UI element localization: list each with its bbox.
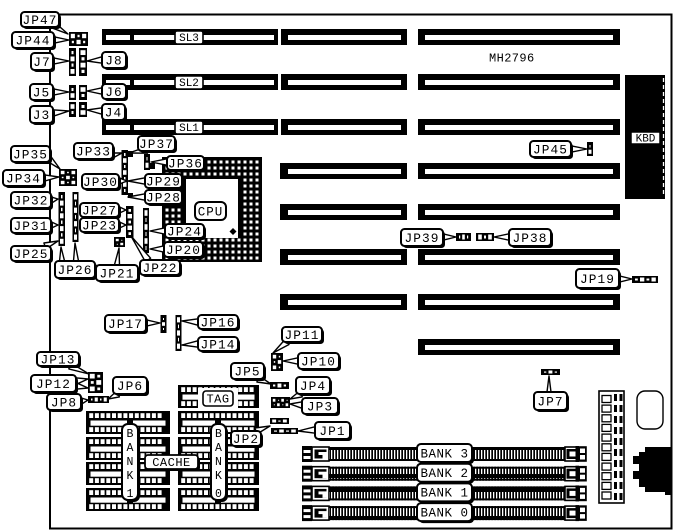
svg-text:JP2: JP2 (233, 432, 259, 447)
svg-text:N: N (127, 456, 134, 469)
svg-text:JP28: JP28 (146, 190, 181, 205)
svg-text:A: A (127, 442, 134, 455)
svg-text:K: K (215, 470, 222, 483)
svg-text:SL1: SL1 (179, 123, 199, 135)
svg-text:MH2796: MH2796 (489, 52, 535, 66)
svg-text:J6: J6 (105, 85, 123, 100)
svg-text:JP17: JP17 (108, 317, 143, 332)
svg-text:J4: J4 (105, 105, 123, 120)
svg-text:JP31: JP31 (13, 219, 48, 234)
svg-text:JP33: JP33 (76, 144, 111, 159)
svg-text:JP37: JP37 (139, 137, 174, 152)
svg-text:BANK 3: BANK 3 (420, 447, 468, 461)
svg-text:0: 0 (215, 488, 222, 501)
svg-text:BANK 0: BANK 0 (420, 506, 468, 520)
svg-text:B: B (215, 428, 222, 441)
svg-text:JP25: JP25 (13, 247, 48, 262)
svg-text:J8: J8 (105, 53, 123, 68)
svg-text:JP11: JP11 (284, 328, 319, 343)
svg-text:1: 1 (127, 488, 134, 501)
svg-text:JP8: JP8 (51, 395, 77, 410)
svg-text:JP39: JP39 (404, 231, 439, 246)
svg-text:SL3: SL3 (179, 33, 199, 45)
svg-text:JP19: JP19 (580, 272, 615, 287)
svg-text:A: A (215, 442, 222, 455)
svg-text:SL2: SL2 (179, 78, 199, 90)
svg-text:B: B (127, 428, 134, 441)
svg-text:JP1: JP1 (319, 424, 345, 439)
svg-text:JP32: JP32 (13, 193, 48, 208)
svg-text:JP36: JP36 (168, 156, 203, 171)
svg-text:JP16: JP16 (200, 315, 235, 330)
svg-text:N: N (215, 456, 222, 469)
svg-text:JP23: JP23 (82, 218, 117, 233)
svg-text:JP47: JP47 (22, 13, 57, 28)
svg-text:J3: J3 (33, 108, 51, 123)
svg-text:CPU: CPU (198, 205, 224, 219)
svg-text:JP13: JP13 (40, 352, 75, 367)
svg-text:JP22: JP22 (142, 261, 177, 276)
svg-text:JP38: JP38 (512, 231, 547, 246)
svg-text:KBD: KBD (636, 134, 656, 146)
svg-text:JP5: JP5 (234, 364, 260, 379)
svg-text:JP21: JP21 (99, 266, 134, 281)
svg-text:JP7: JP7 (537, 394, 563, 409)
svg-text:JP29: JP29 (146, 174, 181, 189)
svg-text:CACHE: CACHE (152, 456, 191, 470)
svg-text:JP20: JP20 (166, 243, 201, 258)
svg-text:JP12: JP12 (36, 377, 71, 392)
svg-text:JP4: JP4 (300, 379, 326, 394)
svg-text:JP10: JP10 (301, 354, 336, 369)
svg-text:JP30: JP30 (83, 175, 118, 190)
svg-text:JP27: JP27 (82, 203, 117, 218)
svg-text:JP44: JP44 (15, 33, 50, 48)
svg-text:JP34: JP34 (6, 171, 41, 186)
svg-text:K: K (127, 470, 134, 483)
svg-text:JP24: JP24 (167, 224, 202, 239)
svg-text:JP14: JP14 (200, 337, 235, 352)
svg-text:BANK 2: BANK 2 (420, 467, 468, 481)
svg-text:JP6: JP6 (117, 379, 143, 394)
svg-text:BANK 1: BANK 1 (420, 487, 468, 501)
svg-text:JP45: JP45 (533, 142, 568, 157)
svg-text:J5: J5 (33, 85, 51, 100)
svg-text:JP35: JP35 (13, 147, 48, 162)
svg-text:JP3: JP3 (307, 399, 333, 414)
svg-text:TAG: TAG (206, 393, 229, 407)
svg-text:JP26: JP26 (57, 263, 92, 278)
svg-text:J7: J7 (33, 55, 51, 70)
